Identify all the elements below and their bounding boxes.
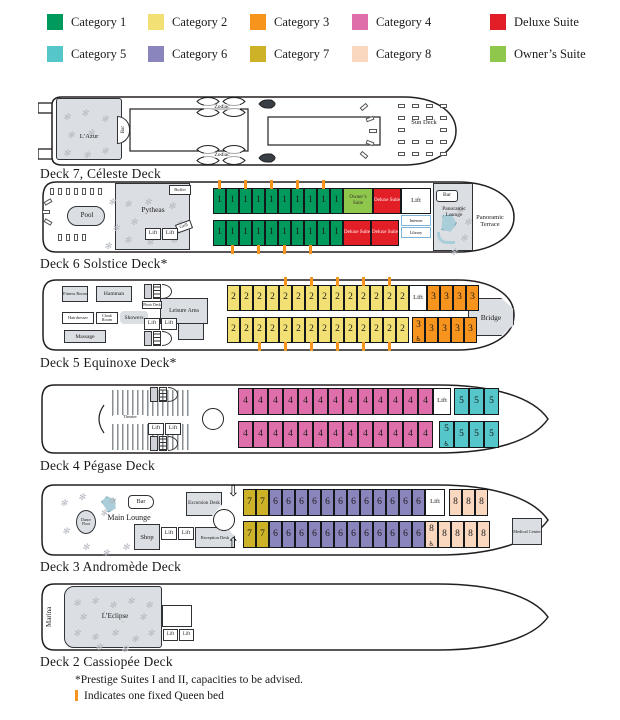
cabin-number: 6 <box>299 498 304 508</box>
lounge-chair-icon <box>412 152 419 156</box>
cabin-cell: 1 <box>291 188 304 214</box>
cabin-cell: 3 <box>464 317 477 343</box>
cabin-number: 3 <box>431 293 436 303</box>
lounge-chair-icon <box>426 104 433 108</box>
photo-desk-label: Photo Desk <box>143 303 161 307</box>
lazur-room: L’Azur <box>56 98 122 160</box>
cabin-number: 2 <box>296 325 301 335</box>
cabin-cell: 2 <box>240 285 253 311</box>
queen-bed-indicator <box>75 690 78 701</box>
cabin-number: 1 <box>256 196 261 206</box>
cabin-number: 4 <box>408 430 413 440</box>
eclipse-restaurant: L’Eclipse <box>64 586 162 648</box>
cabin-number: 4 <box>288 397 293 407</box>
legend-item: Category 4 <box>352 14 431 30</box>
legend-item: Category 5 <box>47 46 126 62</box>
lounge-chair-icon <box>426 152 433 156</box>
cabin-cell: 1 <box>291 220 304 246</box>
cabin-number: 2 <box>309 293 314 303</box>
hammam-room: Hamman <box>96 286 132 302</box>
cabin-cell: 3 <box>453 285 466 311</box>
zodiac-label: Zodiac <box>204 104 240 110</box>
cabin-number: 2 <box>257 293 262 303</box>
lift: Lift <box>145 228 161 240</box>
cloak-room-label: Cloak Room <box>97 314 117 323</box>
cabin-cell: 6 <box>282 521 295 548</box>
zodiac-boats-bottom: Zodiac <box>196 144 248 166</box>
cabin-cell: 3 <box>451 317 464 343</box>
cabin-cell: 6 <box>360 521 373 548</box>
queen-bed-indicator <box>310 342 313 351</box>
cabin-cell: 2 <box>396 285 409 311</box>
cabin-cell: 1 <box>252 188 265 214</box>
cabin-cell: 7 <box>256 489 269 516</box>
cabin-cell: 4 <box>418 421 433 448</box>
cabin-cell: 1 <box>304 220 317 246</box>
cabin-cell: 3 <box>427 285 440 311</box>
bar-label: Bar <box>137 499 146 505</box>
deck4-cabin-row-bottom: 44444444444445♿555 <box>238 421 499 448</box>
cabin-number: 6 <box>364 530 369 540</box>
cabin-number: 8 <box>466 498 471 508</box>
cabin-cell: 4 <box>403 388 418 415</box>
cabin-number: 2 <box>387 293 392 303</box>
cabin-number: 2 <box>283 325 288 335</box>
queen-bed-indicator <box>296 180 299 189</box>
cabin-cell: 4 <box>268 421 283 448</box>
cabin-cell: 5 <box>454 388 469 415</box>
deck6-cabin-row-top: 1111111111Owner’s SuiteDeluxe SuiteLift <box>213 188 431 214</box>
atrium-circle <box>202 408 224 430</box>
hammam-label: Hamman <box>104 291 124 297</box>
cabin-cell: 2 <box>357 317 370 343</box>
deck2: Marina L’Eclipse Lift Lift <box>38 582 552 652</box>
cabin-cell: 1 <box>317 220 330 246</box>
cabin-number: 6 <box>325 498 330 508</box>
cabin-cell: 4 <box>388 388 403 415</box>
cabin-number: 1 <box>269 228 274 238</box>
cabin-number: 2 <box>309 325 314 335</box>
cabin-cell: 5 <box>469 421 484 448</box>
stairs-up-arrow-icon: ⇧ <box>227 536 240 551</box>
pool: Pool <box>67 206 105 226</box>
lift-cell: Lift <box>425 489 445 516</box>
cabin-number: 4 <box>303 397 308 407</box>
cabin-cell: 1 <box>226 220 239 246</box>
lift-label: Lift <box>167 632 174 637</box>
cabin-number: 8 <box>468 530 473 540</box>
cabin-cell: 2 <box>253 285 266 311</box>
marina-label: Marina <box>46 598 54 636</box>
cabin-number: 2 <box>387 325 392 335</box>
lift-label: Lift <box>166 231 174 237</box>
cabin-number: 1 <box>230 196 235 206</box>
cabin-number: 8 <box>429 525 434 535</box>
cabin-cell: 1 <box>252 220 265 246</box>
cabin-number: 6 <box>286 530 291 540</box>
cabin-number: 6 <box>403 530 408 540</box>
legend-swatch <box>352 14 368 30</box>
cabin-number: Deluxe Suite <box>344 230 370 236</box>
cabin-cell: 2 <box>344 317 357 343</box>
cabin-cell: 6 <box>412 489 425 516</box>
cabin-cell: 6 <box>399 521 412 548</box>
cabin-cell: 8 <box>449 489 462 516</box>
cabin-number: 2 <box>374 293 379 303</box>
queen-bed-indicator <box>309 245 312 254</box>
cabin-cell: 2 <box>253 317 266 343</box>
cabin-cell: 6 <box>321 521 334 548</box>
cabin-number: 2 <box>361 293 366 303</box>
queen-bed-indicator <box>231 245 234 254</box>
cabin-cell: 4 <box>268 388 283 415</box>
cabin-cell: 6 <box>334 521 347 548</box>
main-lounge-label: Main Lounge <box>98 514 160 523</box>
cabin-number: 3 <box>457 293 462 303</box>
lift-cell: Lift <box>409 285 427 311</box>
bar: Bar <box>436 190 458 202</box>
lift-label: Lift <box>165 321 173 327</box>
cabin-number: Lift <box>430 499 440 506</box>
cabin-cell: 6 <box>360 489 373 516</box>
bar: Bar <box>128 495 154 509</box>
lounge-chair-icon <box>82 234 86 241</box>
cabin-number: 5 <box>444 425 449 435</box>
legend-item: Deluxe Suite <box>490 14 579 30</box>
cabin-cell: 4 <box>343 421 358 448</box>
cabin-cell: 4 <box>298 388 313 415</box>
cabin-number: 7 <box>260 530 265 540</box>
fitness-label: Fitness Room <box>63 292 87 297</box>
cabin-cell: 2 <box>383 317 396 343</box>
cabin-cell: 4 <box>328 421 343 448</box>
cabin-cell: 1 <box>213 188 226 214</box>
cabin-cell: 6 <box>347 521 360 548</box>
cabin-number: 1 <box>295 196 300 206</box>
lift-label: Lift <box>152 426 160 432</box>
lounge-chair-icon <box>440 104 447 108</box>
queen-bed-indicator <box>284 277 287 286</box>
cabin-cell: 5 <box>484 388 499 415</box>
cabin-cell: 6 <box>282 489 295 516</box>
cabin-number: 1 <box>217 196 222 206</box>
showers-label: Showers <box>125 315 144 321</box>
cabin-number: 4 <box>303 430 308 440</box>
cabin-number: 2 <box>361 325 366 335</box>
deck3-cabin-row-bottom: 776666666666668♿8888 <box>243 521 490 548</box>
cabin-number: 4 <box>408 397 413 407</box>
cabin-number: 1 <box>295 228 300 238</box>
legend-label: Category 2 <box>172 15 227 30</box>
cabin-number: 2 <box>374 325 379 335</box>
cabin-cell: 8 <box>464 521 477 548</box>
table-icon <box>131 629 139 647</box>
cabin-cell: 7 <box>256 521 269 548</box>
legend-item: Category 2 <box>148 14 227 30</box>
lounge-chair-icon <box>412 140 419 144</box>
cabin-number: 3 <box>468 325 473 335</box>
leisure-area-label: Leisure Area <box>169 308 199 314</box>
cabin-number: 2 <box>348 293 353 303</box>
cabin-number: 7 <box>247 530 252 540</box>
dance-floor: Dance Floor <box>76 510 96 534</box>
bar-label: Bar <box>443 193 451 199</box>
queen-bed-indicator <box>218 180 221 189</box>
cabin-cell: 4 <box>373 421 388 448</box>
queen-bed-indicator <box>336 277 339 286</box>
cabin-cell: 4 <box>343 388 358 415</box>
cabin-number: 4 <box>393 397 398 407</box>
cabin-cell: 2 <box>292 317 305 343</box>
cabin-number: 1 <box>321 228 326 238</box>
dance-floor-label: Dance Floor <box>77 518 95 527</box>
cabin-number: 4 <box>378 430 383 440</box>
cabin-cell: 7 <box>243 489 256 516</box>
lounge-chair-icon <box>42 210 50 214</box>
table-icon <box>101 141 109 159</box>
deck5-cabin-row-bottom: 222222222222223♿3333 <box>227 317 477 343</box>
legend-label: Category 1 <box>71 15 126 30</box>
cabin-cell: 5 <box>469 388 484 415</box>
massage-label: Massage <box>75 334 94 340</box>
lounge-chair-icon <box>74 234 78 241</box>
cabin-cell: 2 <box>227 317 240 343</box>
lounge-chair-icon <box>90 188 94 195</box>
cabin-number: 7 <box>260 498 265 508</box>
cabin-number: 1 <box>282 228 287 238</box>
cabin-cell: 6 <box>321 489 334 516</box>
queen-bed-indicator <box>388 277 391 286</box>
wheelchair-accessible-icon: ♿ <box>416 336 422 343</box>
cabin-cell: 2 <box>396 317 409 343</box>
cabin-cell: 4 <box>358 421 373 448</box>
cabin-number: 2 <box>244 325 249 335</box>
cabin-cell: 2 <box>370 285 383 311</box>
cabin-cell: 2 <box>383 285 396 311</box>
lift-label: Lift <box>149 231 157 237</box>
stairs-icon <box>150 387 178 402</box>
cabin-number: 4 <box>288 430 293 440</box>
cabin-cell: 7 <box>243 521 256 548</box>
cabin-number: 1 <box>308 228 313 238</box>
ship-deck-plan: Category 1Category 2Category 3Category 4… <box>0 0 620 720</box>
cabin-number: 1 <box>243 196 248 206</box>
cabin-cell: 2 <box>357 285 370 311</box>
table-icon <box>450 242 458 260</box>
cabin-number: Owner’s Suite <box>344 195 372 207</box>
footnote-prestige: *Prestige Suites I and II, capacities to… <box>75 674 303 686</box>
cabin-number: 4 <box>258 430 263 440</box>
cabin-number: 8 <box>455 530 460 540</box>
lift-label: Lift <box>182 531 190 537</box>
zodiac-label: Zodiac <box>204 152 240 158</box>
cabin-cell: 4 <box>403 421 418 448</box>
lounge-chair-icon <box>66 234 70 241</box>
cabin-cell: 2 <box>240 317 253 343</box>
cabin-cell: 2 <box>266 285 279 311</box>
cabin-cell: 6 <box>399 489 412 516</box>
table-icon <box>124 230 132 248</box>
legend-swatch <box>490 14 506 30</box>
table-icon <box>108 491 116 509</box>
table-icon <box>82 537 90 555</box>
legend-swatch <box>490 46 506 62</box>
cabin-number: 1 <box>321 196 326 206</box>
cabin-number: 4 <box>243 397 248 407</box>
excursion-desk-label: Excursion Desk <box>188 501 220 507</box>
cabin-cell: 1 <box>265 188 278 214</box>
table-icon <box>63 143 71 161</box>
cabin-cell: 6 <box>386 489 399 516</box>
deck4-cabin-row-top: 4444444444444Lift555 <box>238 388 499 415</box>
table-icon <box>108 192 116 210</box>
cabin-number: 3 <box>429 325 434 335</box>
zodiac-boats-top: Zodiac <box>196 96 248 118</box>
cabin-number: 1 <box>217 228 222 238</box>
theater-label: Theater <box>113 415 147 420</box>
cabin-number: 2 <box>257 325 262 335</box>
table-icon <box>130 212 138 230</box>
cabin-number: 6 <box>377 530 382 540</box>
fitness-room: Fitness Room <box>62 286 88 302</box>
queen-bed-indicator <box>258 342 261 351</box>
cabin-cell: 2 <box>227 285 240 311</box>
pool-label: Pool <box>68 212 106 220</box>
cabin-cell: 1 <box>330 188 343 214</box>
shop-label: Shop <box>140 534 153 541</box>
cabin-cell: 5 <box>454 421 469 448</box>
cabin-number: 2 <box>244 293 249 303</box>
cabin-number: 3 <box>442 325 447 335</box>
cabin-number: 4 <box>318 430 323 440</box>
cabin-number: 8 <box>479 498 484 508</box>
cabin-cell: 1 <box>226 188 239 214</box>
cabin-number: 4 <box>348 397 353 407</box>
lounge-chair-icon <box>58 188 62 195</box>
lounge-chair-icon <box>440 140 447 144</box>
cabin-number: 2 <box>400 325 405 335</box>
cabin-number: 2 <box>231 325 236 335</box>
lounge-chair-icon <box>440 152 447 156</box>
cabin-number: 6 <box>299 530 304 540</box>
cabin-number: 4 <box>273 430 278 440</box>
queen-bed-indicator <box>310 277 313 286</box>
legend-label: Category 8 <box>376 47 431 62</box>
legend-label: Category 3 <box>274 15 329 30</box>
cabin-number: 1 <box>334 228 339 238</box>
queen-bed-indicator <box>336 342 339 351</box>
massage-room: Massage <box>64 330 106 343</box>
queen-bed-indicator <box>362 342 365 351</box>
cabin-number: 6 <box>377 498 382 508</box>
legend-label: Category 5 <box>71 47 126 62</box>
table-icon <box>109 595 117 613</box>
legend-item: Category 7 <box>250 46 329 62</box>
cabin-cell: 8 <box>475 489 488 516</box>
lounge-chair-icon <box>98 188 102 195</box>
lift: Lift <box>161 527 177 540</box>
cabin-cell: 2 <box>305 285 318 311</box>
reception-desk-label: Reception Desk <box>201 535 230 540</box>
tender-boat-icon <box>258 99 276 109</box>
cabin-number: 6 <box>403 498 408 508</box>
cabin-cell: 2 <box>279 317 292 343</box>
table-icon <box>83 145 91 163</box>
cabin-number: 3 <box>470 293 475 303</box>
cabin-number: 4 <box>258 397 263 407</box>
cabin-cell: 1 <box>239 220 252 246</box>
deck5-label: Deck 5 Equinoxe Deck* <box>40 355 177 371</box>
deck3: Dance Floor Main Lounge Bar Excursion De… <box>38 483 552 557</box>
stairs-icon <box>144 331 172 346</box>
deck6: Pool Pytheas Buffet Grill Lift Lift 1111… <box>38 180 518 254</box>
medical-center-label: Medical Center <box>513 529 541 534</box>
suite-cell: Deluxe Suite <box>373 188 401 214</box>
cabin-cell: 1 <box>278 220 291 246</box>
lift-label: Lift <box>183 632 190 637</box>
queen-bed-indicator <box>362 277 365 286</box>
lounge-chair-icon <box>398 104 405 108</box>
lift-cell: Lift <box>401 188 431 214</box>
lounge-chair-icon <box>82 188 86 195</box>
cabin-number: 2 <box>322 325 327 335</box>
cabin-cell: 3♿ <box>412 317 425 343</box>
cabin-cell: 2 <box>318 285 331 311</box>
cabin-number: Lift <box>413 295 423 302</box>
lift: Lift <box>179 629 194 641</box>
cabin-number: 4 <box>333 397 338 407</box>
hairdresser-label: Hairdresser <box>68 316 88 321</box>
suite-cell: Owner’s Suite <box>343 188 373 214</box>
legend-swatch <box>47 46 63 62</box>
lift: Lift <box>162 228 178 240</box>
legend-label: Category 6 <box>172 47 227 62</box>
cabin-number: 2 <box>322 293 327 303</box>
cabin-cell: 6 <box>373 489 386 516</box>
tender-boat-icon <box>258 153 276 163</box>
lift-label: Lift <box>169 426 177 432</box>
cabin-cell: 4 <box>283 421 298 448</box>
cabin-cell: 4 <box>238 421 253 448</box>
footnote-queen-text: Indicates one fixed Queen bed <box>84 690 224 702</box>
deck5: Fitness Room Hamman Hairdresser Cloak Ro… <box>38 278 518 352</box>
deck3-label: Deck 3 Andromède Deck <box>40 559 181 575</box>
stairs-icon <box>144 284 172 299</box>
cabin-cell: 6 <box>334 489 347 516</box>
cabin-cell: 4 <box>298 421 313 448</box>
cabin-cell: 1 <box>239 188 252 214</box>
cabin-number: 6 <box>338 530 343 540</box>
table-icon <box>104 236 112 254</box>
library-label: Library <box>410 230 423 235</box>
cabin-number: 2 <box>283 293 288 303</box>
internet-label: Internet <box>409 218 422 223</box>
cabin-number: 2 <box>270 325 275 335</box>
cabin-number: 6 <box>273 498 278 508</box>
cabin-number: 4 <box>423 397 428 407</box>
galley-room <box>162 605 192 627</box>
cabin-cell: 3 <box>440 285 453 311</box>
eclipse-label: L’Eclipse <box>93 613 137 621</box>
cabin-number: 2 <box>270 293 275 303</box>
cabin-number: 6 <box>390 498 395 508</box>
legend-swatch <box>250 46 266 62</box>
cabin-cell: 2 <box>305 317 318 343</box>
cabin-number: 8 <box>481 530 486 540</box>
legend-swatch <box>352 46 368 62</box>
lift: Lift <box>178 527 194 540</box>
lounge-chair-icon <box>58 234 62 241</box>
